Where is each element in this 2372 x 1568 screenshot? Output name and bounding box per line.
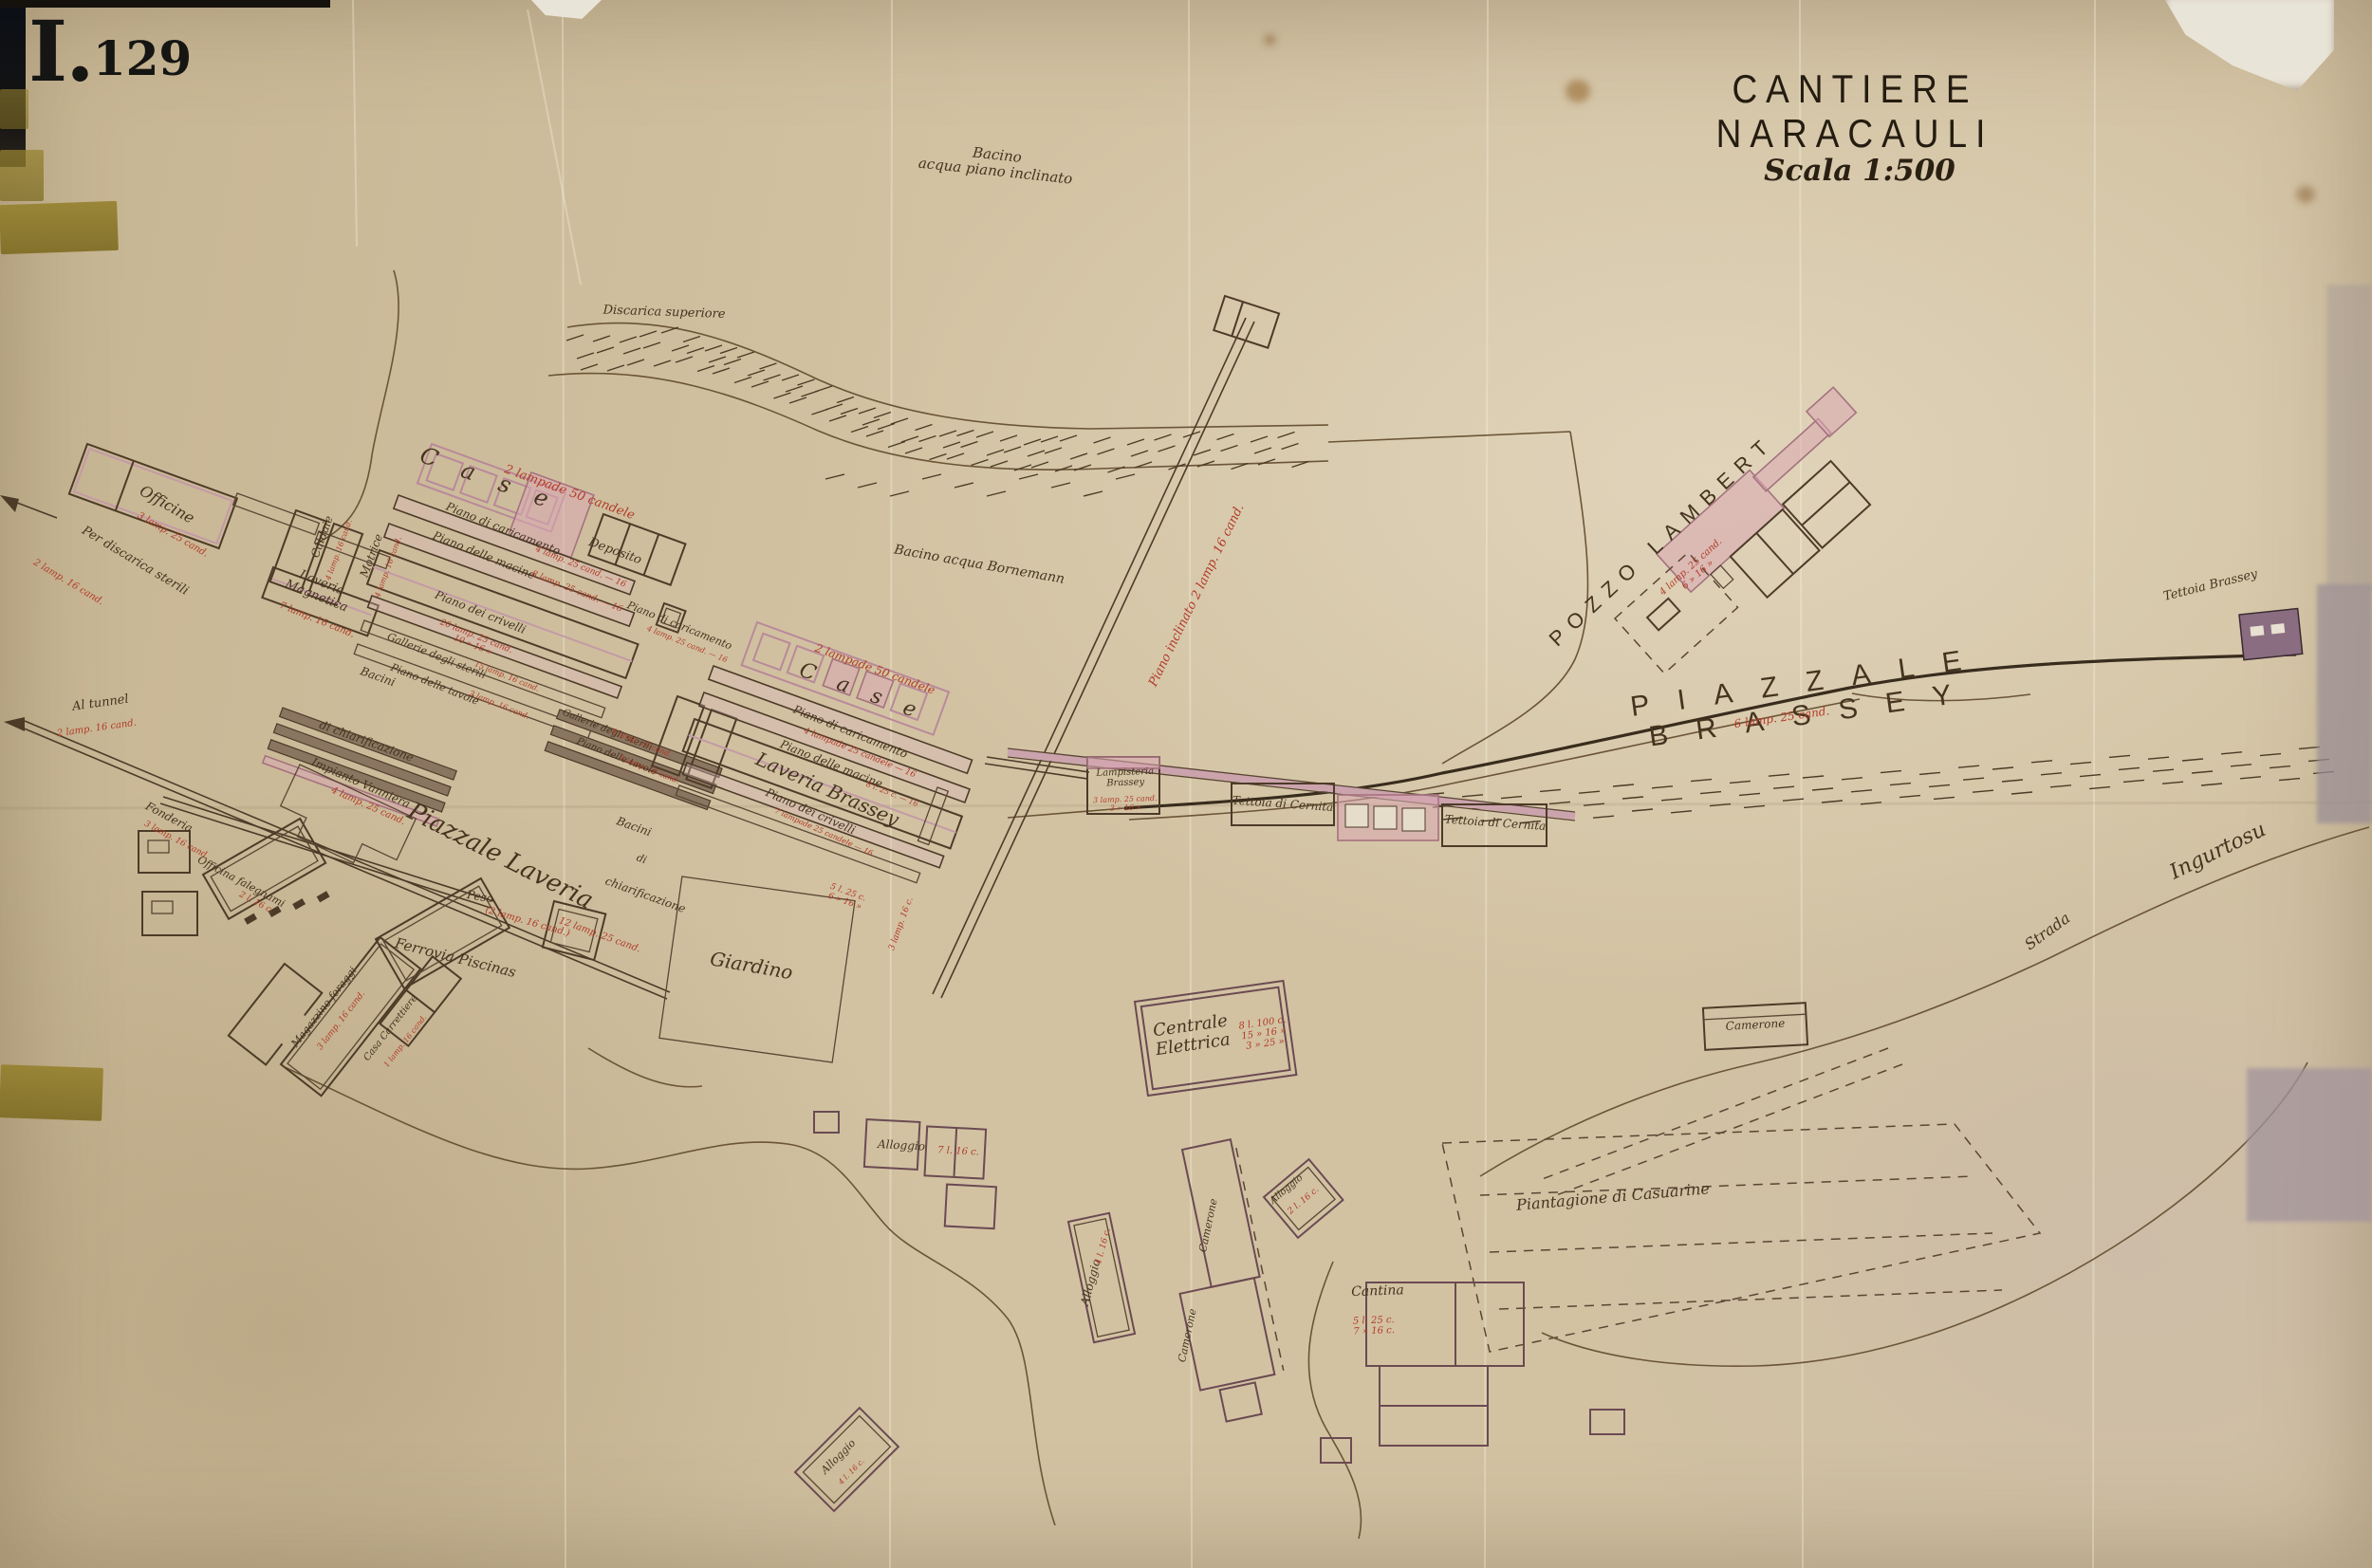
building-camerone-right bbox=[1703, 1003, 1807, 1050]
building-open-shed bbox=[229, 964, 323, 1064]
building-pozzo-lambert bbox=[1653, 387, 1908, 633]
building-cantina bbox=[1321, 1282, 1624, 1463]
building-fonderia bbox=[203, 819, 342, 946]
building-tiny bbox=[814, 1112, 839, 1133]
building-tettoia-mid bbox=[1338, 795, 1438, 840]
marsh-band-upper bbox=[548, 323, 1570, 472]
building-wc bbox=[2239, 609, 2303, 660]
building-laveria-magnetica bbox=[262, 567, 379, 636]
building-alloggio-bottom bbox=[795, 1408, 899, 1511]
stream-bottom bbox=[285, 1048, 2307, 1539]
arrow-discarica-icon bbox=[0, 495, 19, 512]
paper-fold-creases bbox=[0, 0, 2372, 1568]
incline-track bbox=[933, 296, 1279, 998]
plate-number: 129 bbox=[93, 30, 192, 86]
building-camerone-long bbox=[1151, 1138, 1291, 1425]
building-small-1 bbox=[139, 831, 190, 873]
sheet-number-plate: I.129 bbox=[28, 2, 192, 101]
catwalk-end bbox=[917, 787, 948, 844]
building-centrale-elettrica bbox=[1135, 981, 1296, 1096]
scanned-map-sheet: .ink{stroke:#4d3b28;fill:none;stroke-wid… bbox=[0, 0, 2372, 1568]
building-officine bbox=[69, 444, 390, 569]
building-casello bbox=[657, 603, 686, 633]
map-scale: Scala 1:500 bbox=[1746, 154, 1974, 188]
building-alloggio-vertical bbox=[1068, 1213, 1135, 1342]
building-alloggio-7 bbox=[862, 1119, 999, 1228]
garden-square bbox=[659, 876, 855, 1062]
plate-prefix: I. bbox=[28, 2, 93, 101]
building-motrice-1 bbox=[308, 524, 362, 605]
map-title: CANTIERE NARACAULI bbox=[1665, 67, 2045, 157]
road-strada bbox=[1480, 827, 2369, 1197]
plantation-boundary bbox=[1442, 1124, 2040, 1352]
building-alloggio-square bbox=[1264, 1159, 1343, 1238]
connector-track-2 bbox=[985, 764, 1087, 779]
arrow-al-tunnel-icon bbox=[4, 717, 25, 731]
map-drawing: .ink{stroke:#4d3b28;fill:none;stroke-wid… bbox=[0, 0, 2372, 1568]
building-magazzino-foraggi bbox=[281, 924, 461, 1119]
building-small-2 bbox=[142, 892, 197, 935]
basins-chiarificazione-right bbox=[545, 710, 722, 809]
building-officina-falegnami bbox=[376, 878, 510, 988]
stream-upper-left bbox=[315, 270, 398, 544]
terrace-tavole-1 bbox=[354, 644, 591, 739]
